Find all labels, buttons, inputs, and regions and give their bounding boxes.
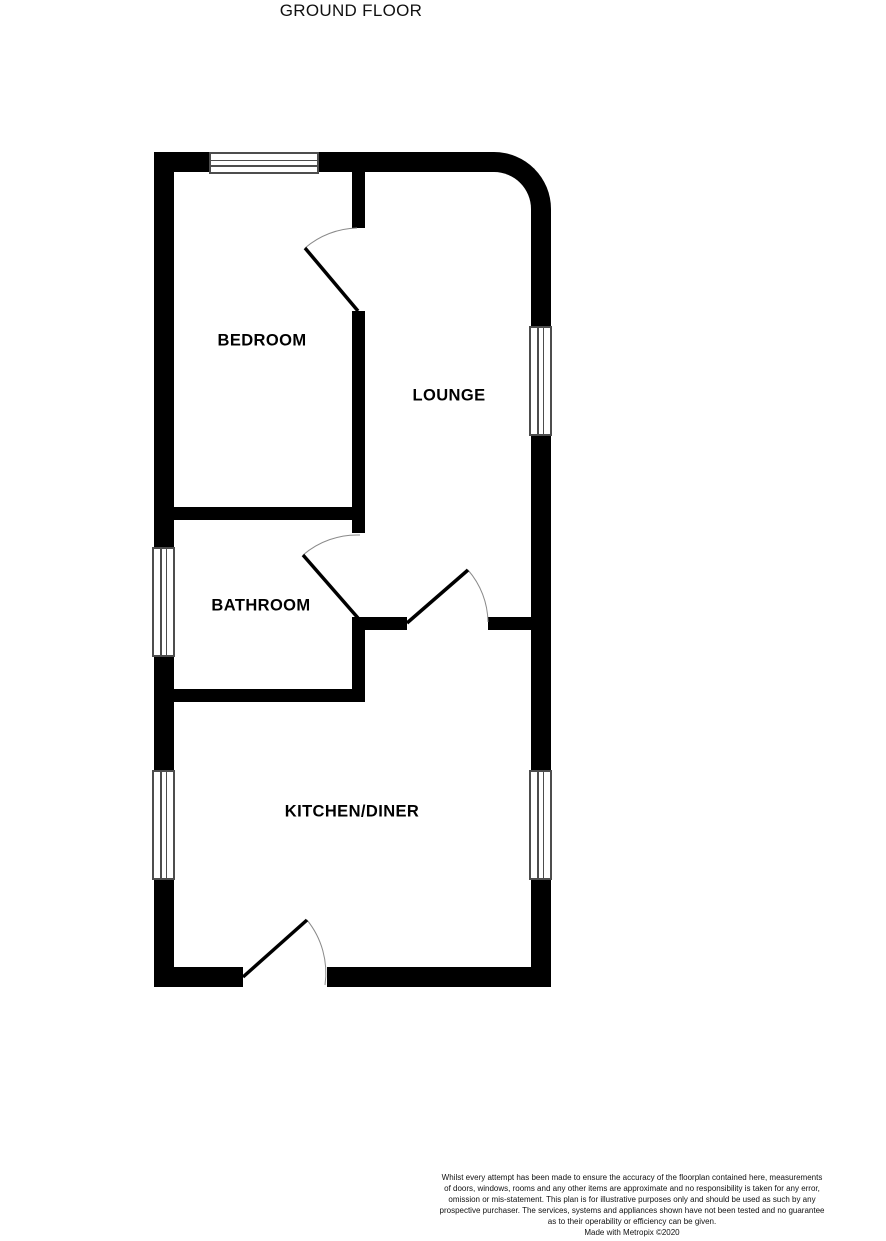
disclaimer-line: omission or mis-statement. This plan is … [412,1195,852,1206]
bathroom-door-leaf [303,555,358,618]
floorplan-page: GROUND FLOOR BEDROOM LOUNGE BATHROOM KIT… [0,0,886,1241]
disclaimer-line: as to their operability or efficiency ca… [412,1217,852,1228]
metropix-credit: Made with Metropix ©2020 [412,1228,852,1239]
disclaimer: Whilst every attempt has been made to en… [412,1173,852,1238]
door-swings-layer [0,0,886,1241]
hall-door-leaf [407,570,468,623]
hall-door-arc [468,570,488,622]
disclaimer-line: Whilst every attempt has been made to en… [412,1173,852,1184]
bathroom-door-arc [303,535,360,555]
bedroom-door-arc [305,228,357,248]
bedroom-label: BEDROOM [218,332,307,351]
disclaimer-line: prospective purchaser. The services, sys… [412,1206,852,1217]
entrance-door-leaf [243,920,307,977]
disclaimer-line: of doors, windows, rooms and any other i… [412,1184,852,1195]
bathroom-label: BATHROOM [211,597,310,616]
kitchen-diner-label: KITCHEN/DINER [285,803,419,822]
entrance-door-arc [307,920,326,985]
lounge-label: LOUNGE [413,387,486,406]
bedroom-door-leaf [305,248,358,311]
